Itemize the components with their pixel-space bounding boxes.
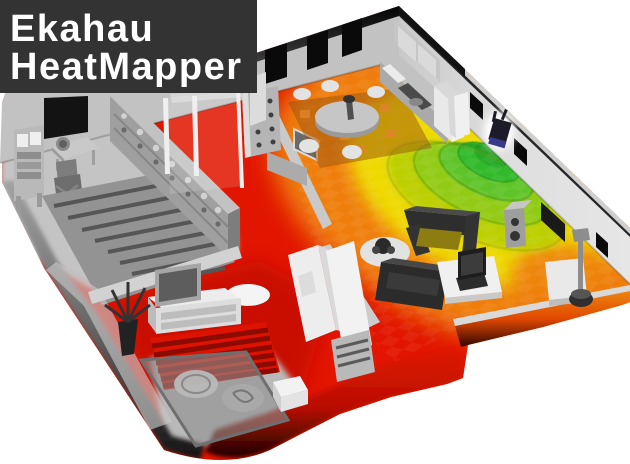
svg-text:Ekahau: Ekahau <box>10 8 154 50</box>
svg-text:HeatMapper: HeatMapper <box>10 46 243 88</box>
